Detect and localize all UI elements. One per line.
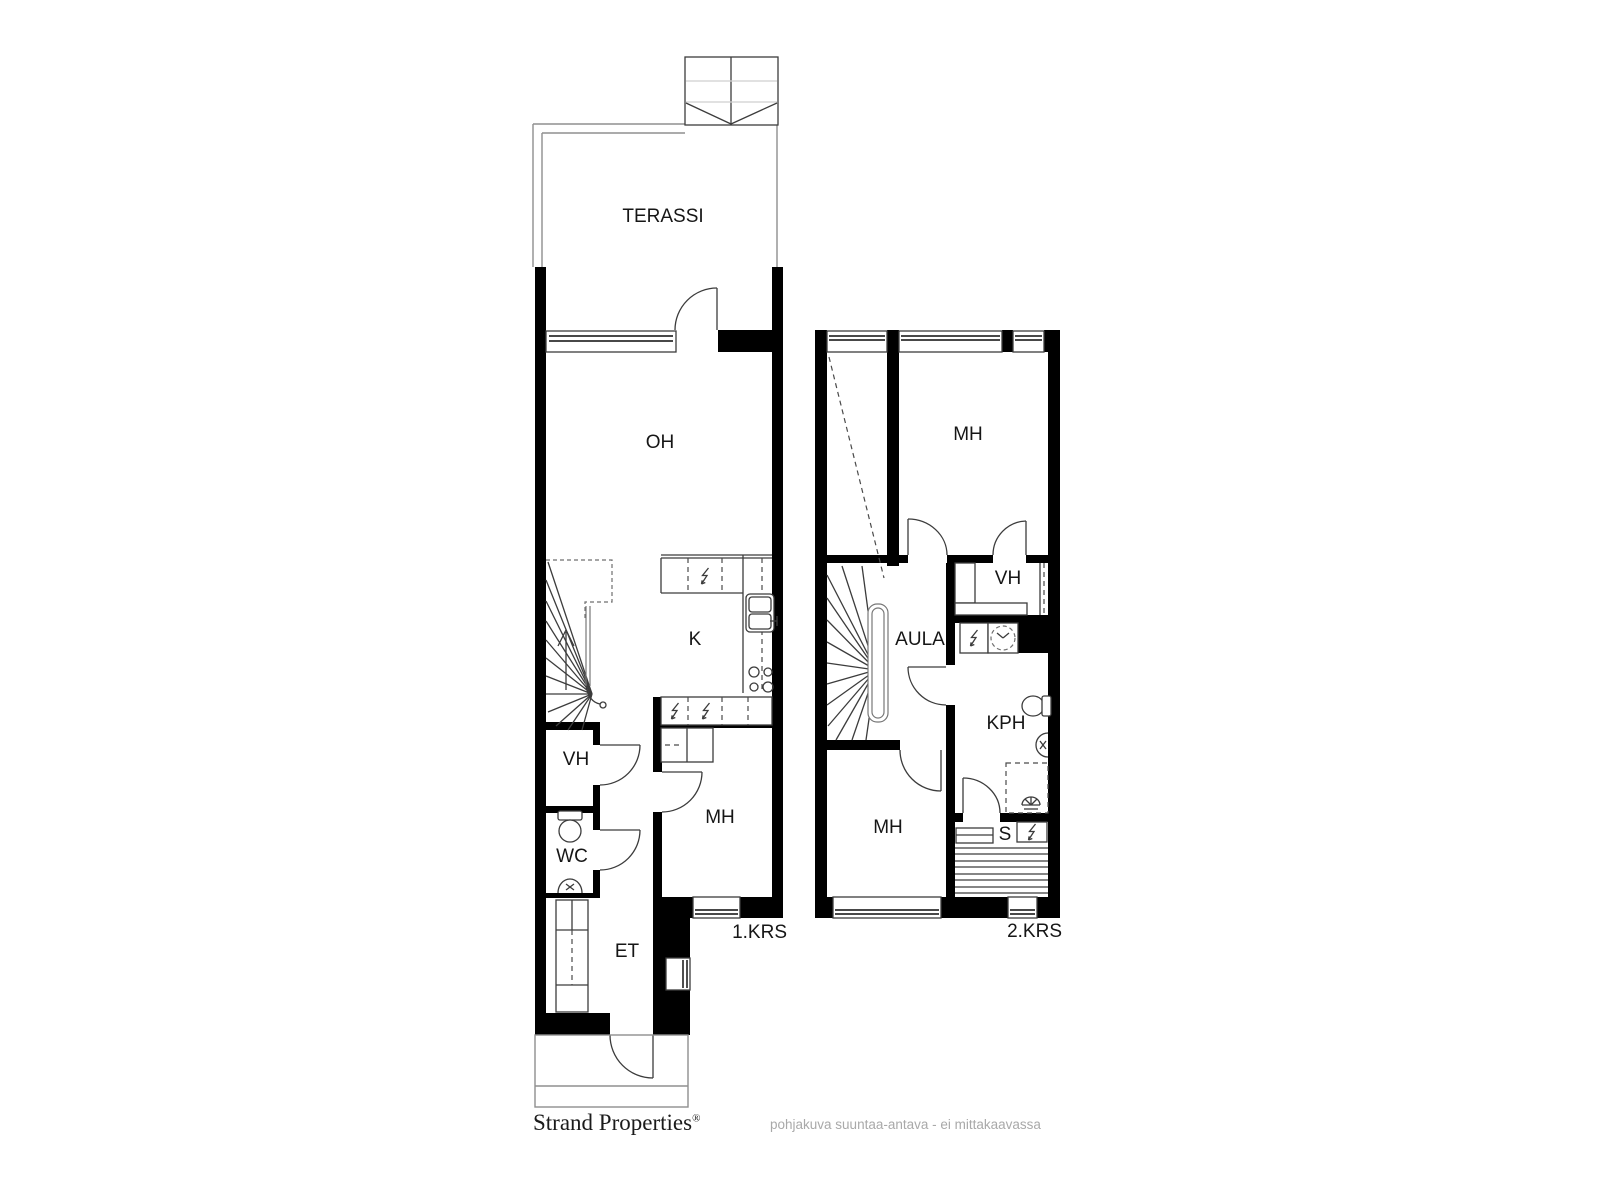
entry-side-window	[666, 958, 690, 990]
kph-door	[908, 667, 946, 705]
stove-icon	[749, 667, 773, 692]
washing-machine-icon	[960, 623, 988, 653]
trademark-symbol: ®	[692, 1112, 700, 1124]
sauna-door	[963, 778, 1000, 813]
sauna-bench-upper	[956, 828, 993, 843]
bedroom-bottom-door	[900, 750, 941, 791]
vh-door-f2	[993, 521, 1026, 555]
terrace-storage-box	[685, 57, 778, 125]
void-window	[827, 331, 887, 352]
corner-window	[1013, 331, 1044, 352]
kitchen-counter-bottom	[661, 697, 772, 725]
shower-area	[1006, 763, 1048, 813]
floor1-plan: TERASSI	[533, 57, 787, 1107]
room-label-mh-bottom: MH	[873, 817, 903, 838]
shower-icon	[1022, 797, 1040, 809]
room-label-mh-top: MH	[953, 424, 983, 445]
room-label-et: ET	[615, 941, 640, 962]
floor2-plan: MH VH AULA KPH MH S 2.KRS	[815, 330, 1062, 942]
toilet-icon-f2	[1022, 696, 1051, 716]
entry-closet	[556, 900, 588, 1012]
room-label-vh-f2: VH	[995, 568, 1021, 589]
terrace-door	[675, 288, 717, 330]
laundry-appliances	[960, 623, 1018, 653]
sauna-heater-icon	[1017, 822, 1047, 842]
wc-door	[600, 830, 640, 870]
room-label-oh: OH	[646, 432, 675, 453]
entrance-door	[610, 1035, 653, 1078]
room-label-s: S	[999, 824, 1012, 845]
floor-plan-page: TERASSI	[0, 0, 1600, 1200]
void-opening-diagonal	[829, 357, 884, 578]
bedroom-top-door	[908, 519, 947, 555]
bedroom-wardrobe	[661, 728, 713, 762]
room-label-wc: WC	[556, 846, 588, 867]
disclaimer-text: pohjakuva suuntaa-antava - ei mittakaava…	[770, 1117, 1041, 1132]
room-label-terassi: TERASSI	[622, 206, 703, 227]
floor1-label: 1.KRS	[732, 922, 787, 943]
room-label-aula: AULA	[895, 629, 945, 650]
toilet-icon	[558, 811, 582, 842]
sink-icon-f2	[1036, 733, 1048, 757]
sink-icon	[558, 879, 582, 893]
terrace: TERASSI	[533, 57, 778, 267]
kitchen-counter-top	[661, 558, 743, 593]
room-label-vh-f1: VH	[563, 749, 589, 770]
room-label-mh-f1: MH	[705, 807, 735, 828]
bedroom-top-window	[899, 331, 1002, 352]
staircase-floor1	[546, 560, 612, 730]
kitchen-fixtures	[661, 555, 777, 725]
sauna-benches	[955, 848, 1048, 893]
bedroom-door	[662, 772, 702, 812]
vh-door	[600, 745, 640, 785]
bedroom-window	[693, 897, 740, 918]
sauna-window	[1008, 897, 1037, 918]
floor2-label: 2.KRS	[1007, 921, 1062, 942]
dryer-icon	[988, 623, 1018, 653]
floor-plan-drawing: TERASSI	[0, 0, 1600, 1200]
bedroom-bottom-window	[833, 897, 941, 918]
brand-logo-text: Strand Properties®	[533, 1110, 700, 1136]
kitchen-sink	[746, 594, 777, 632]
room-label-k: K	[689, 629, 702, 650]
electricity-icon	[702, 568, 709, 584]
staircase-floor2	[827, 566, 888, 740]
room-label-kph: KPH	[986, 713, 1025, 734]
terrace-window	[546, 331, 676, 352]
